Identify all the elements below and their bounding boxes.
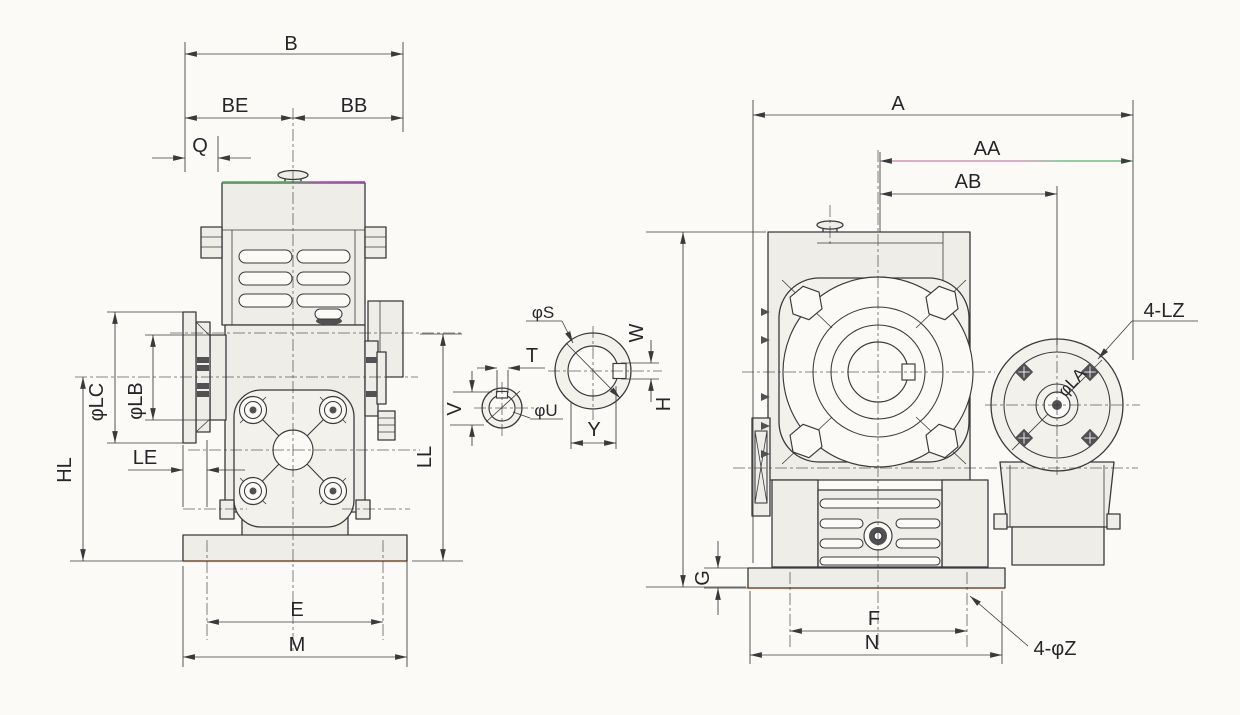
dim-q: Q [152, 135, 251, 172]
front-output-flange [220, 390, 370, 527]
dim-h: H [646, 232, 766, 587]
dim-label-ab: AB [955, 171, 982, 193]
dim-label-le: LE [133, 447, 157, 469]
shaft-sections: φS W Y T V [444, 303, 662, 449]
dim-be: BE [185, 95, 293, 118]
front-view: B BE BB Q φLC φLB [54, 33, 463, 667]
dim-label-ll: LL [414, 446, 436, 468]
dim-label-q: Q [192, 135, 208, 157]
dim-z: 4-φZ [970, 596, 1076, 660]
dim-label-aa: AA [974, 138, 1001, 160]
flange-bolt [320, 397, 347, 424]
dim-lc: φLC [86, 312, 190, 443]
dim-label-a: A [891, 93, 905, 115]
dim-bb: BB [293, 95, 403, 118]
dim-label-w: W [626, 323, 648, 342]
dim-label-bb: BB [341, 95, 368, 117]
dim-label-t: T [526, 345, 538, 367]
dim-label-v: V [444, 402, 466, 416]
side-lower-housing [748, 480, 1005, 589]
front-input-shaft-cover-left [183, 312, 226, 443]
dim-aa: AA [880, 138, 1133, 232]
dim-label-u: φU [534, 401, 557, 420]
dim-label-lz: 4-LZ [1143, 300, 1184, 322]
dim-label-b: B [284, 33, 297, 55]
flange-bolt [240, 478, 267, 505]
dim-label-e: E [290, 599, 303, 621]
dim-lz: 4-LZ [1098, 300, 1198, 359]
drawing-canvas: B BE BB Q φLC φLB [0, 0, 1240, 715]
dim-label-hl: HL [54, 457, 76, 483]
dim-label-f: F [868, 608, 880, 630]
dim-label-h: H [653, 397, 675, 411]
flange-bolt [320, 478, 347, 505]
dim-t: T [477, 345, 545, 393]
dim-e: E [207, 599, 383, 622]
dim-label-lc: φLC [86, 383, 108, 422]
dim-label-m: M [289, 634, 306, 656]
dim-label-s: φS [532, 303, 554, 322]
input-shaft-section [474, 382, 534, 436]
dim-f: F [790, 608, 967, 631]
side-view: A AA AB H G F [646, 93, 1198, 664]
dim-label-y: Y [587, 419, 600, 441]
dim-label-g: G [692, 570, 714, 586]
dim-label-z: 4-φZ [1034, 638, 1077, 660]
dim-hl: HL [54, 377, 183, 561]
dim-g: G [692, 541, 748, 615]
dim-label-n: N [865, 632, 879, 654]
dim-s: φS [526, 303, 573, 343]
dim-label-lb: φLB [125, 382, 147, 419]
gearbox-dimension-drawing: B BE BB Q φLC φLB [0, 0, 1240, 715]
dim-ll: LL [412, 334, 463, 561]
dim-w: W [621, 323, 659, 402]
dim-label-be: BE [222, 95, 249, 117]
flange-bolt [240, 397, 267, 424]
